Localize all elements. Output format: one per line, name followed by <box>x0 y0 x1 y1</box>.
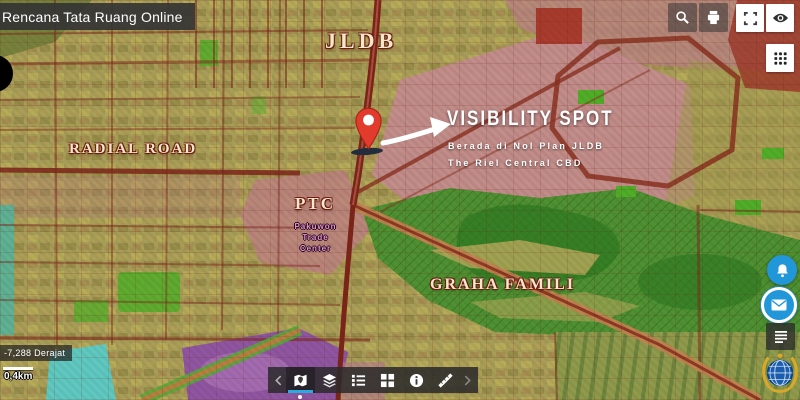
map-label-pakuwon-trade-center: Pakuwon Trade Center <box>288 221 343 254</box>
eye-icon <box>772 12 789 24</box>
chevron-left-icon <box>275 375 282 386</box>
print-button[interactable] <box>699 3 728 32</box>
ptc-sub-line2: Trade <box>288 232 343 243</box>
apps-grid-icon <box>773 51 788 66</box>
map-label-ptc: PTC <box>295 194 335 214</box>
toolbar-chevron-right[interactable] <box>460 367 475 393</box>
info-icon <box>409 373 424 388</box>
annotation-line1: Berada di Nol Plan JLDB <box>448 141 604 151</box>
toolbar-legend-button[interactable] <box>344 367 373 393</box>
search-button[interactable] <box>668 3 697 32</box>
toolbar-info-button[interactable] <box>402 367 431 393</box>
annotation-visibility-spot-title: VISIBILITY SPOT <box>447 106 614 131</box>
apps-grid-button[interactable] <box>766 44 794 72</box>
annotation-line2: The Riel Central CBD <box>448 158 583 168</box>
ministry-globe-logo <box>759 349 800 395</box>
map-label-graha-famili: GRAHA FAMILI <box>430 276 575 294</box>
basemap-icon <box>293 373 308 388</box>
map-app-window: JLDB RADIAL ROAD PTC Pakuwon Trade Cente… <box>0 0 800 400</box>
legend-list-icon <box>351 373 366 388</box>
toolbar-measure-button[interactable] <box>431 367 460 393</box>
visibility-button[interactable] <box>766 4 794 32</box>
chevron-right-icon <box>464 375 471 386</box>
contact-email-button[interactable] <box>761 287 797 323</box>
grid-2x2-icon <box>380 373 395 388</box>
ptc-sub-line1: Pakuwon <box>288 221 343 232</box>
toolbar-basemap-button[interactable] <box>286 367 315 393</box>
app-title: Rencana Tata Ruang Online <box>2 9 183 25</box>
ptc-sub-line3: Center <box>288 243 343 254</box>
toolbar-chevron-left[interactable] <box>271 367 286 393</box>
scale-label: 0,4km <box>4 371 32 382</box>
toolbar-page-dot <box>298 395 302 399</box>
map-toolbar <box>268 367 478 393</box>
measure-pencil-icon <box>438 373 453 388</box>
legend-panel-button[interactable] <box>766 323 795 350</box>
map-canvas[interactable] <box>0 0 800 400</box>
annotation-arrow <box>378 113 456 151</box>
layers-icon <box>322 373 337 388</box>
app-title-bar: Rencana Tata Ruang Online <box>0 3 195 30</box>
cursor-coordinates: -7,288 Derajat <box>0 345 72 361</box>
scale-bar <box>3 367 33 370</box>
list-lines-icon <box>774 330 788 344</box>
fullscreen-button[interactable] <box>736 4 764 32</box>
toolbar-grid-button[interactable] <box>373 367 402 393</box>
map-label-jldb: JLDB <box>325 28 397 54</box>
map-label-radial-road: RADIAL ROAD <box>69 141 197 158</box>
envelope-icon <box>771 299 787 311</box>
fullscreen-icon <box>743 11 758 26</box>
notifications-button[interactable] <box>767 255 797 285</box>
search-icon <box>675 10 690 25</box>
printer-icon <box>706 10 721 25</box>
toolbar-layers-button[interactable] <box>315 367 344 393</box>
bell-icon <box>775 263 790 278</box>
